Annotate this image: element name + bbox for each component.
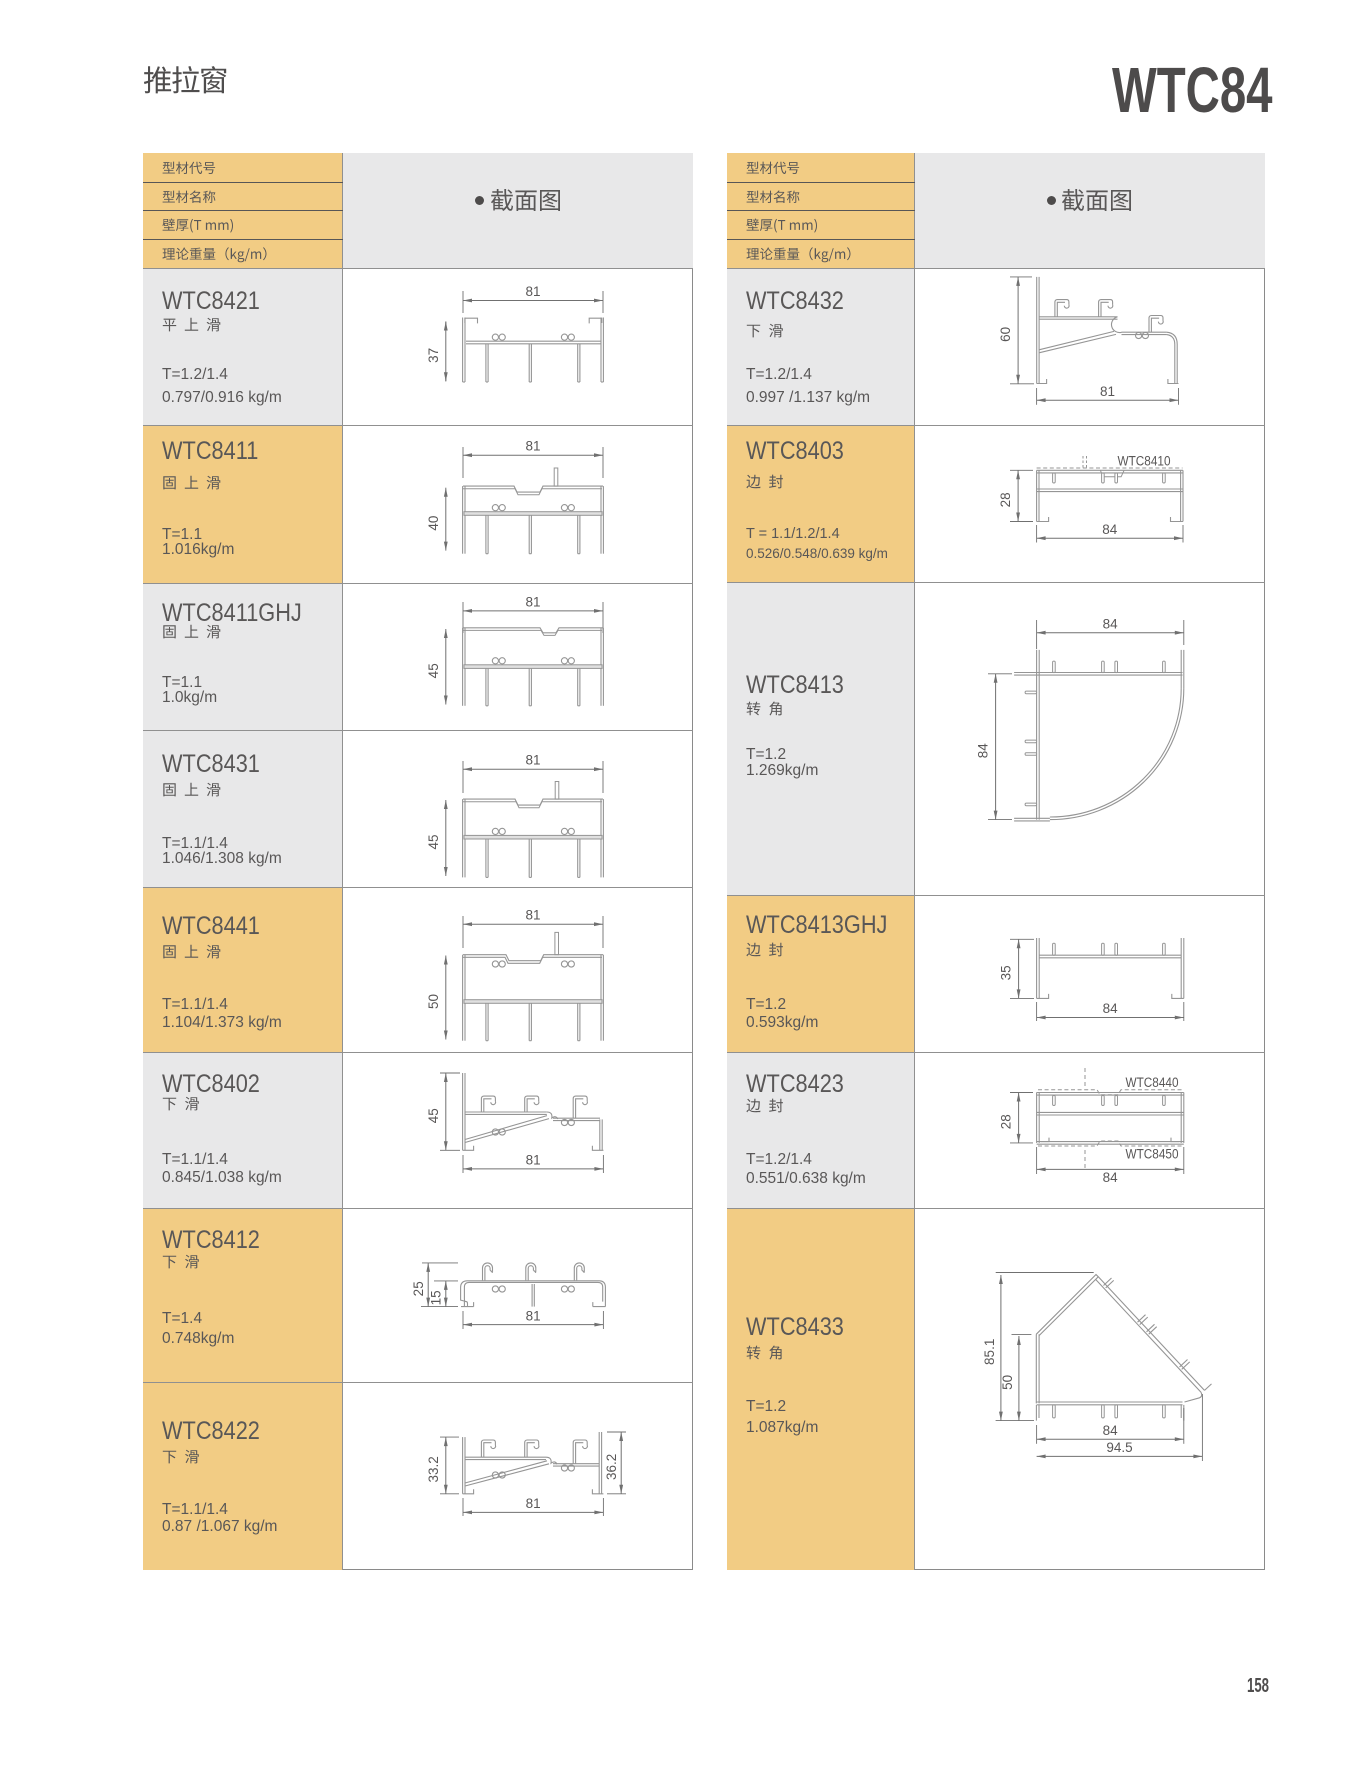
svg-text:81: 81 [526, 1496, 541, 1511]
svg-text:84: 84 [976, 743, 991, 759]
svg-text:28: 28 [998, 492, 1013, 507]
svg-text:85.1: 85.1 [982, 1339, 997, 1365]
svg-text:WTC8410: WTC8410 [1118, 454, 1171, 469]
svg-text:45: 45 [426, 663, 441, 678]
svg-text:36.2: 36.2 [604, 1454, 619, 1480]
svg-text:84: 84 [1102, 522, 1118, 537]
svg-text:81: 81 [526, 1153, 541, 1168]
svg-text:81: 81 [525, 753, 540, 768]
svg-text:28: 28 [999, 1114, 1014, 1129]
svg-text:84: 84 [1103, 1170, 1119, 1185]
svg-text:25: 25 [411, 1281, 426, 1296]
svg-text:50: 50 [426, 994, 441, 1009]
svg-text:84: 84 [1103, 616, 1119, 631]
svg-text:WTC8440: WTC8440 [1126, 1075, 1179, 1090]
svg-text:81: 81 [1100, 384, 1115, 399]
svg-text:15: 15 [429, 1290, 444, 1305]
svg-text:60: 60 [998, 327, 1013, 342]
svg-text:33.2: 33.2 [426, 1456, 441, 1482]
svg-text:94.5: 94.5 [1106, 1440, 1132, 1455]
svg-text:50: 50 [1000, 1375, 1015, 1390]
svg-text:45: 45 [426, 1108, 441, 1123]
svg-text:37: 37 [426, 348, 441, 363]
svg-text:45: 45 [426, 834, 441, 849]
svg-text:84: 84 [1103, 1423, 1119, 1438]
svg-text:81: 81 [525, 284, 540, 299]
svg-text:81: 81 [525, 908, 540, 923]
svg-text:35: 35 [999, 965, 1014, 980]
svg-text:81: 81 [526, 1308, 541, 1323]
svg-text:40: 40 [426, 516, 441, 531]
svg-text:81: 81 [525, 439, 540, 454]
svg-text:WTC8450: WTC8450 [1126, 1146, 1179, 1161]
svg-text:81: 81 [525, 594, 540, 609]
svg-text:84: 84 [1103, 1001, 1119, 1016]
